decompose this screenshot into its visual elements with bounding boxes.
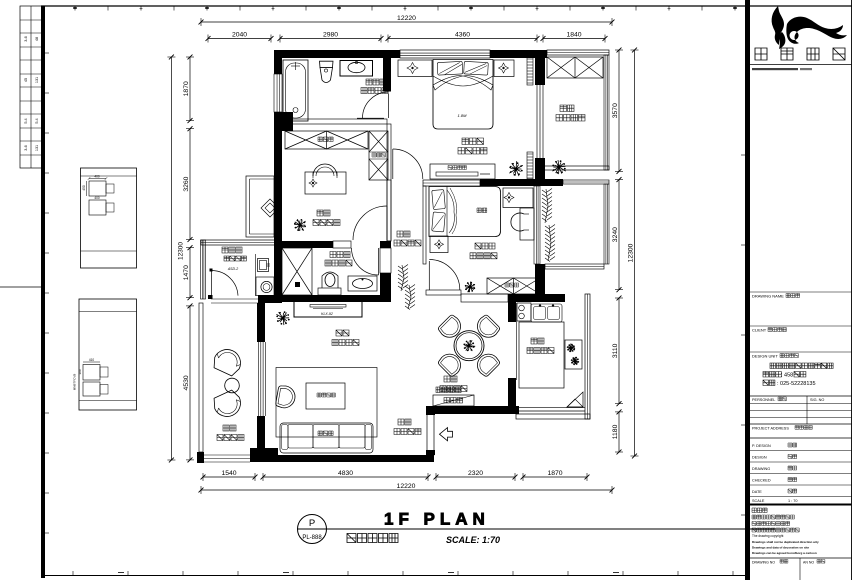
svg-text:12300: 12300: [178, 242, 185, 260]
svg-text:3-6: 3-6: [24, 145, 28, 151]
svg-text:DESIGN: DESIGN: [752, 456, 767, 460]
svg-text:SCALE: 1:70: SCALE: 1:70: [446, 535, 500, 545]
svg-text:4530: 4530: [183, 375, 190, 390]
svg-text:PERSONNEL: PERSONNEL: [752, 398, 775, 402]
svg-text:1540: 1540: [221, 470, 236, 477]
svg-text:DESIGN UNIT: DESIGN UNIT: [752, 354, 778, 359]
svg-text:: 025-52228135: : 025-52228135: [777, 381, 816, 387]
svg-text:CLIENT: CLIENT: [752, 328, 767, 333]
svg-text:2980: 2980: [323, 31, 338, 38]
svg-text:131: 131: [35, 77, 39, 83]
svg-text:P: P: [309, 518, 315, 529]
svg-text:4360: 4360: [455, 31, 470, 38]
svg-text:5.4: 5.4: [24, 118, 28, 123]
svg-text:: 458: : 458: [781, 373, 793, 379]
svg-text:1F PLAN: 1F PLAN: [384, 510, 490, 529]
svg-text:3110: 3110: [612, 343, 619, 358]
svg-text:2320: 2320: [468, 470, 483, 477]
svg-text:Drawings and data of decoratio: Drawings and data of decoration on site: [752, 546, 809, 550]
svg-text:1180: 1180: [612, 424, 619, 439]
svg-text:SIG. NO: SIG. NO: [810, 398, 824, 402]
svg-text:12220: 12220: [397, 483, 416, 490]
svg-text:The drawing copyright: The drawing copyright: [752, 534, 783, 538]
svg-text:PL-888: PL-888: [302, 535, 322, 541]
svg-text:3-6: 3-6: [24, 36, 28, 42]
svg-text:12300: 12300: [627, 243, 634, 262]
svg-text:KLX-92: KLX-92: [321, 312, 333, 316]
svg-text:1840: 1840: [566, 31, 581, 38]
svg-text:45: 45: [24, 78, 28, 82]
svg-text:Drawings can be agreed bonofbo: Drawings can be agreed bonofborg a carto…: [752, 551, 817, 555]
svg-text:DRAWING: DRAWING: [752, 467, 770, 471]
svg-text:5.4: 5.4: [35, 118, 39, 123]
svg-text:1870: 1870: [183, 81, 190, 96]
svg-text:P. DESIGN: P. DESIGN: [752, 444, 771, 448]
svg-text:DRAWING NO: DRAWING NO: [752, 561, 775, 565]
svg-text:4830: 4830: [338, 470, 353, 477]
svg-text:131: 131: [35, 145, 39, 151]
svg-text:1470: 1470: [183, 265, 190, 280]
svg-text:Drawings shall not be duplicat: Drawings shall not be duplicated directi…: [752, 540, 819, 544]
svg-text:1 : 70: 1 : 70: [788, 499, 798, 503]
svg-text:300: 300: [78, 369, 82, 374]
svg-text:3240: 3240: [612, 227, 619, 242]
svg-text:DRAWING NAME: DRAWING NAME: [752, 294, 784, 299]
svg-text:3570: 3570: [612, 103, 619, 118]
svg-text:1870: 1870: [547, 470, 562, 477]
svg-text:PROJECT ADDRESS: PROJECT ADDRESS: [752, 427, 789, 431]
svg-text:410: 410: [89, 358, 95, 362]
svg-text:CHECKED: CHECKED: [752, 479, 771, 483]
svg-text:12220: 12220: [397, 15, 416, 22]
svg-text:AN NO: AN NO: [803, 561, 814, 565]
svg-text:450: 450: [82, 185, 86, 191]
svg-text:SCALE: SCALE: [752, 499, 765, 503]
svg-text:MNBTFCVB: MNBTFCVB: [73, 374, 77, 391]
svg-text:DATE: DATE: [752, 490, 762, 494]
svg-text:ASD-2: ASD-2: [227, 267, 238, 271]
svg-text:1.8M: 1.8M: [458, 113, 468, 118]
svg-text:2040: 2040: [232, 31, 247, 38]
svg-text:400: 400: [94, 196, 100, 200]
svg-text:3260: 3260: [183, 176, 190, 191]
svg-text:48: 48: [35, 37, 39, 41]
svg-text:400: 400: [94, 175, 100, 179]
